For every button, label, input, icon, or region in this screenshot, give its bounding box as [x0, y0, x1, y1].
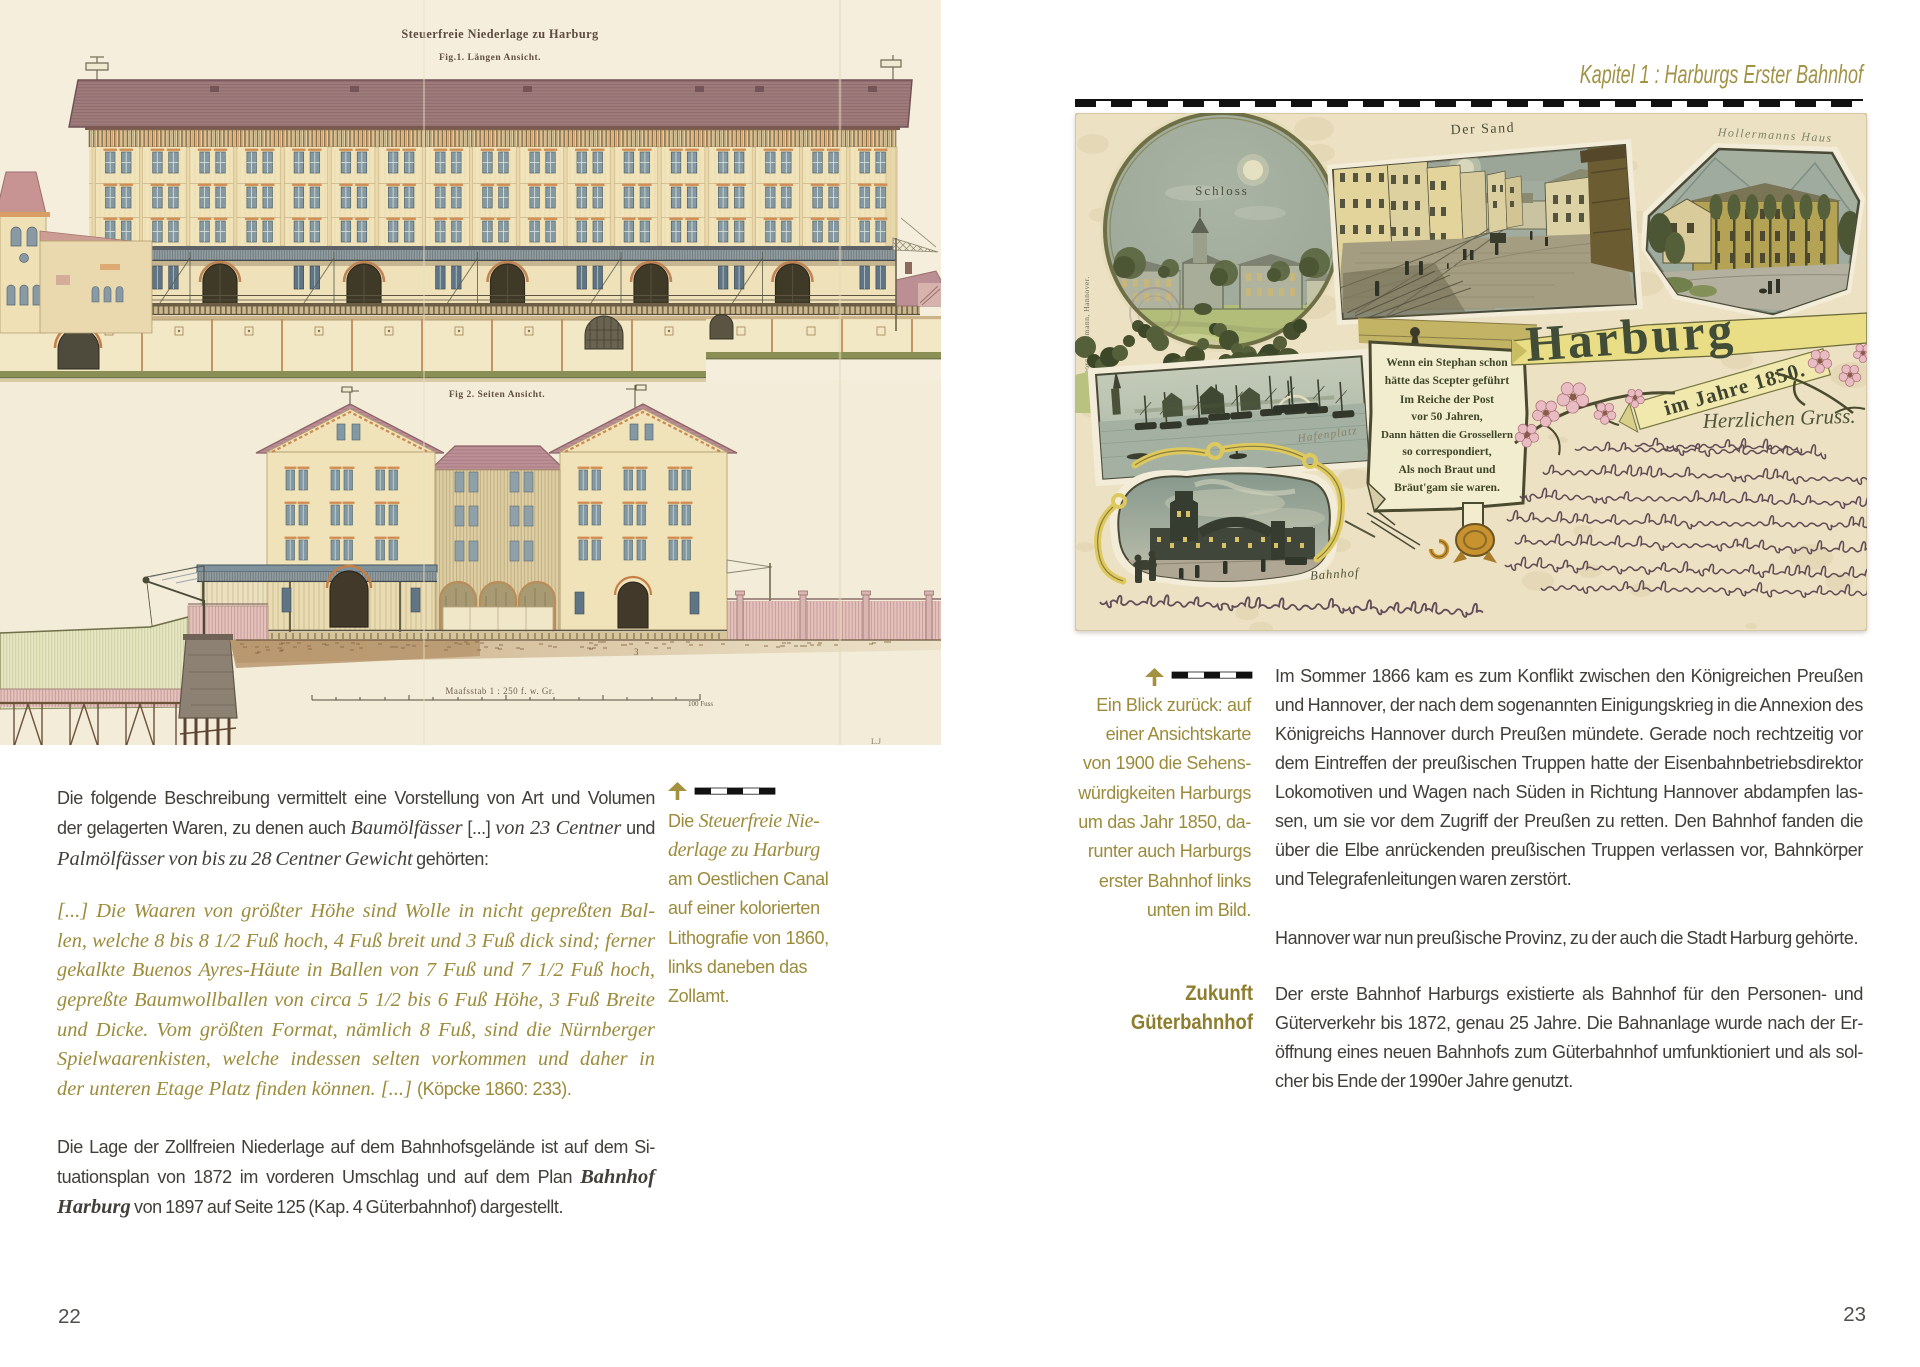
- svg-text:100 Fuss: 100 Fuss: [688, 700, 713, 708]
- svg-text:hätte das Scepter geführt: hätte das Scepter geführt: [1385, 374, 1510, 387]
- svg-text:Der Sand: Der Sand: [1450, 121, 1515, 138]
- svg-text:vor 50 Jahren,: vor 50 Jahren,: [1411, 410, 1482, 423]
- svg-text:Im Reiche der Post: Im Reiche der Post: [1400, 393, 1494, 406]
- svg-text:so correspondiert,: so correspondiert,: [1402, 445, 1491, 458]
- svg-text:Fig 2. Seiten Ansicht.: Fig 2. Seiten Ansicht.: [449, 390, 545, 400]
- svg-text:Bräut'gam sie waren.: Bräut'gam sie waren.: [1394, 481, 1500, 494]
- svg-text:Steuerfreie Niederlage zu Harb: Steuerfreie Niederlage zu Harburg: [401, 27, 599, 41]
- svg-text:Wenn ein Stephan schon: Wenn ein Stephan schon: [1386, 356, 1508, 369]
- svg-text:Maafsstab 1 : 250 f. w. Gr.: Maafsstab 1 : 250 f. w. Gr.: [445, 686, 554, 696]
- svg-text:Fig.1. Längen Ansicht.: Fig.1. Längen Ansicht.: [439, 53, 541, 63]
- svg-text:3: 3: [634, 647, 639, 657]
- svg-text:Als noch Braut und: Als noch Braut und: [1399, 463, 1497, 476]
- svg-text:Schloss: Schloss: [1195, 183, 1249, 198]
- svg-text:Dann hätten die Grossellern: Dann hätten die Grossellern: [1381, 429, 1513, 441]
- svg-text:L.J: L.J: [871, 737, 881, 745]
